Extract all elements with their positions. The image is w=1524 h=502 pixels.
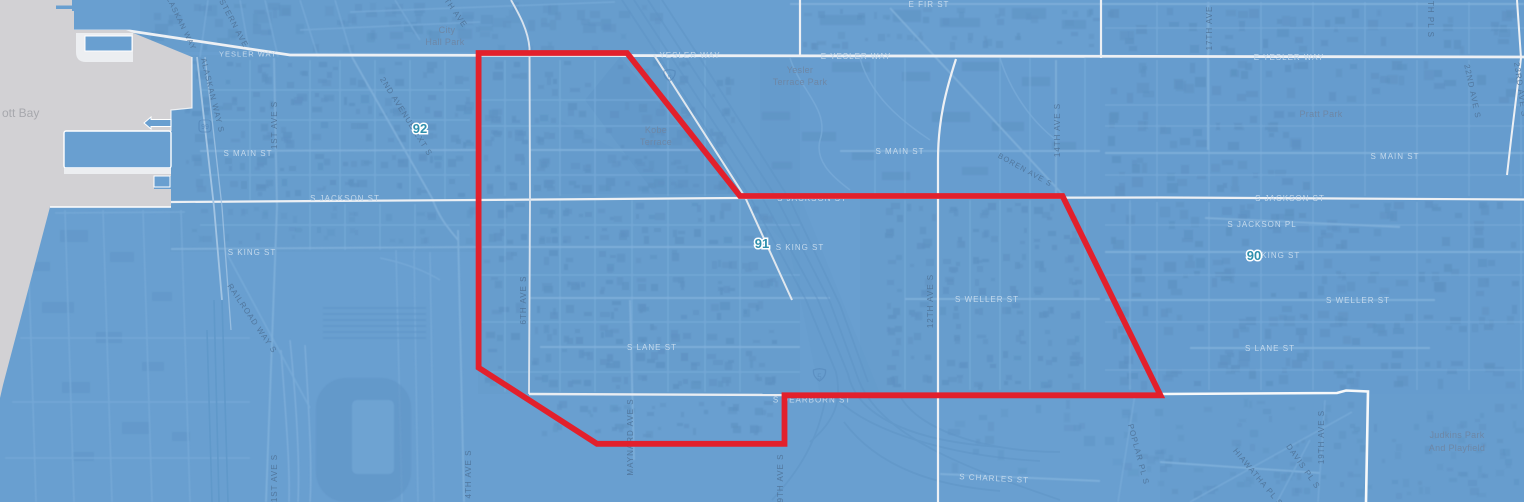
svg-text:9TH AVE S: 9TH AVE S: [776, 454, 785, 502]
svg-text:5: 5: [817, 373, 822, 382]
svg-text:S KING ST: S KING ST: [228, 248, 277, 257]
svg-text:S JACKSON PL: S JACKSON PL: [1227, 220, 1296, 229]
svg-text:90: 90: [1247, 248, 1261, 263]
svg-text:Kobe: Kobe: [645, 125, 667, 135]
svg-text:City: City: [439, 25, 456, 35]
svg-text:And Playfield: And Playfield: [1429, 443, 1485, 453]
svg-text:17TH AVE: 17TH AVE: [1205, 6, 1214, 51]
svg-text:Judkins Park: Judkins Park: [1429, 430, 1484, 440]
svg-text:E FIR ST: E FIR ST: [909, 0, 950, 9]
svg-text:E YESLER WAY: E YESLER WAY: [1254, 53, 1325, 62]
svg-text:MAYNARD AVE S: MAYNARD AVE S: [626, 398, 635, 475]
svg-text:92: 92: [413, 121, 427, 136]
svg-text:S WELLER ST: S WELLER ST: [1326, 296, 1390, 305]
svg-text:YESLER WAY: YESLER WAY: [219, 50, 277, 59]
svg-text:S LANE ST: S LANE ST: [627, 343, 677, 352]
svg-text:99: 99: [201, 124, 209, 131]
svg-text:S LANE ST: S LANE ST: [1245, 344, 1295, 353]
svg-text:20TH PL S: 20TH PL S: [1426, 0, 1435, 38]
svg-text:1ST AVE S: 1ST AVE S: [270, 454, 279, 502]
svg-text:1ST AVE S: 1ST AVE S: [270, 101, 279, 149]
svg-text:S JACKSON ST: S JACKSON ST: [1255, 194, 1325, 203]
svg-text:S MAIN ST: S MAIN ST: [1370, 152, 1419, 161]
svg-text:ott Bay: ott Bay: [2, 106, 39, 120]
svg-text:S MAIN ST: S MAIN ST: [875, 147, 924, 156]
svg-text:Terrace: Terrace: [640, 137, 672, 147]
svg-text:4TH AVE S: 4TH AVE S: [464, 450, 473, 499]
svg-text:12TH AVE S: 12TH AVE S: [926, 274, 935, 328]
svg-text:YESLER WAY: YESLER WAY: [659, 51, 720, 60]
svg-text:19TH AVE S: 19TH AVE S: [1317, 410, 1326, 464]
svg-text:5: 5: [668, 75, 672, 82]
svg-text:S JACKSON ST: S JACKSON ST: [310, 194, 380, 203]
svg-text:S KING ST: S KING ST: [776, 243, 825, 252]
svg-text:S MAIN ST: S MAIN ST: [223, 149, 272, 158]
svg-text:91: 91: [755, 236, 769, 251]
svg-text:6TH AVE S: 6TH AVE S: [519, 276, 528, 325]
svg-text:14TH AVE S: 14TH AVE S: [1053, 103, 1062, 157]
svg-text:Pratt Park: Pratt Park: [1299, 109, 1342, 119]
svg-text:Hall Park: Hall Park: [425, 37, 464, 47]
svg-text:Terrace Park: Terrace Park: [773, 77, 828, 87]
svg-text:S WELLER ST: S WELLER ST: [955, 295, 1019, 304]
svg-text:Yesler: Yesler: [787, 65, 813, 75]
svg-text:E YESLER WAY: E YESLER WAY: [821, 52, 892, 61]
